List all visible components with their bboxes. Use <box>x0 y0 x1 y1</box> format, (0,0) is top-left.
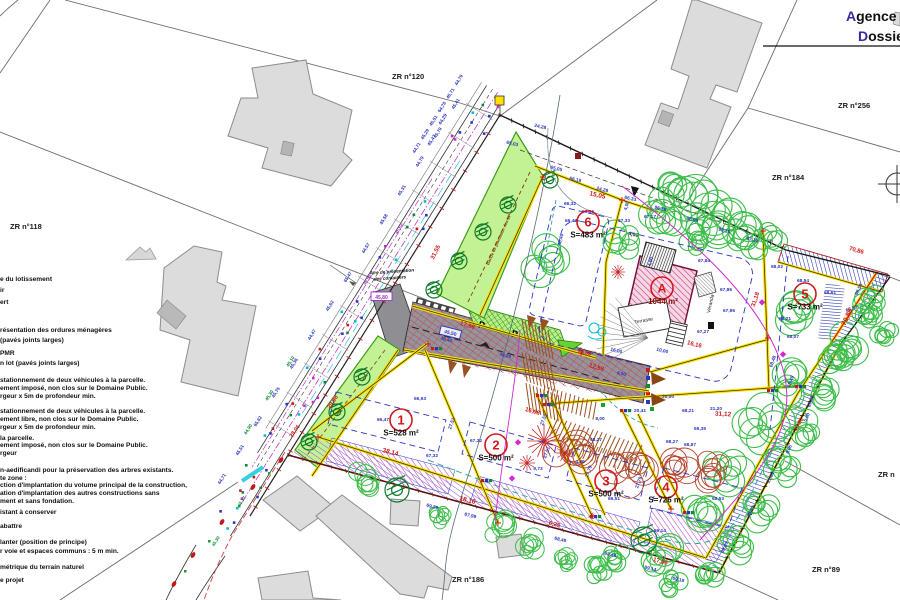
svg-text:S=528 m²: S=528 m² <box>383 429 419 438</box>
svg-text:ZR n°120: ZR n°120 <box>392 72 424 81</box>
svg-text:ement imposé, non clos sur le: ement imposé, non clos sur le Domaine Pu… <box>0 442 148 449</box>
svg-text:45,80: 45,80 <box>375 295 388 301</box>
svg-text:68,02: 68,02 <box>771 264 783 270</box>
svg-text:stationnement de deux véhicule: stationnement de deux véhicules à la par… <box>0 377 145 384</box>
svg-text:n-aedificandi pour la préserva: n-aedificandi pour la préservation des a… <box>0 467 173 474</box>
svg-text:PMR: PMR <box>0 350 15 357</box>
svg-text:ZR n°256: ZR n°256 <box>838 101 870 110</box>
svg-text:Agence :: Agence : <box>846 8 900 24</box>
svg-text:ir: ir <box>0 287 5 294</box>
svg-text:A: A <box>658 282 667 296</box>
svg-text:ement imposé, non clos sur le: ement imposé, non clos sur le Domaine Pu… <box>0 385 148 392</box>
svg-text:67,32: 67,32 <box>470 438 482 444</box>
svg-text:ation d'implantation des autre: ation d'implantation des autres construc… <box>0 490 160 497</box>
svg-text:66,93: 66,93 <box>414 396 426 402</box>
svg-text:68,07: 68,07 <box>787 334 799 340</box>
svg-text:8,00: 8,00 <box>595 416 605 422</box>
svg-text:abattre: abattre <box>0 523 22 530</box>
svg-text:4,00: 4,00 <box>575 459 585 465</box>
svg-text:31,12: 31,12 <box>715 411 732 419</box>
svg-text:1: 1 <box>397 413 404 428</box>
svg-text:66,32: 66,32 <box>564 201 576 207</box>
svg-text:ZR n°186: ZR n°186 <box>452 575 484 584</box>
svg-text:r voie et espaces communs : 5: r voie et espaces communs : 5 m min. <box>0 548 119 555</box>
svg-text:S=483 m²: S=483 m² <box>570 231 606 240</box>
svg-text:(pavés joints larges): (pavés joints larges) <box>0 337 64 344</box>
svg-text:ert: ert <box>0 299 9 306</box>
svg-text:66,42: 66,42 <box>565 218 577 224</box>
svg-text:S=726 m²: S=726 m² <box>648 496 684 505</box>
svg-text:68,27: 68,27 <box>590 437 602 443</box>
svg-text:ZR n°118: ZR n°118 <box>10 222 42 231</box>
svg-text:69,14: 69,14 <box>654 528 666 534</box>
svg-text:stationnement de deux véhicule: stationnement de deux véhicules à la par… <box>0 408 145 415</box>
svg-text:S=500 m²: S=500 m² <box>588 490 624 499</box>
svg-text:67,32: 67,32 <box>426 453 438 459</box>
svg-text:68,87: 68,87 <box>684 442 696 448</box>
svg-text:e projet: e projet <box>0 577 25 584</box>
svg-text:20,41: 20,41 <box>634 408 646 414</box>
svg-text:ction d'implantation du volume: ction d'implantation du volume principal… <box>0 482 187 489</box>
svg-text:67,33: 67,33 <box>618 218 630 224</box>
svg-text:Dossier: Dossier <box>858 28 900 44</box>
svg-text:ZR n°184: ZR n°184 <box>772 173 805 182</box>
svg-text:3: 3 <box>602 474 609 489</box>
svg-text:68,53: 68,53 <box>712 496 724 502</box>
svg-text:rgeur x 5m de profondeur min.: rgeur x 5m de profondeur min. <box>0 424 96 431</box>
svg-text:lanter (position de principe): lanter (position de principe) <box>0 539 87 546</box>
svg-text:la parcelle.: la parcelle. <box>0 435 34 442</box>
svg-text:67,86: 67,86 <box>720 287 732 293</box>
svg-text:n lot (pavés joints larges): n lot (pavés joints larges) <box>0 360 80 367</box>
svg-text:9,73: 9,73 <box>533 466 543 472</box>
svg-text:résentation des ordures ménagè: résentation des ordures ménagères <box>0 327 112 334</box>
svg-text:2: 2 <box>492 438 499 453</box>
svg-text:te zone :: te zone : <box>0 475 27 482</box>
svg-text:ZR n°89: ZR n°89 <box>812 565 840 574</box>
svg-text:68,61: 68,61 <box>824 290 836 296</box>
svg-text:ment et sans fondation.: ment et sans fondation. <box>0 498 74 505</box>
svg-text:S=500 m²: S=500 m² <box>478 454 514 463</box>
svg-text:68,27: 68,27 <box>666 439 678 445</box>
svg-text:5: 5 <box>801 287 808 302</box>
svg-text:68,21: 68,21 <box>779 316 791 322</box>
svg-text:e du lotissement: e du lotissement <box>0 276 53 283</box>
svg-text:67,27: 67,27 <box>697 329 709 335</box>
svg-text:rgeur x 5m de profondeur min.: rgeur x 5m de profondeur min. <box>0 393 96 400</box>
svg-text:67,84: 67,84 <box>698 258 710 264</box>
svg-text:67,96: 67,96 <box>723 308 735 314</box>
svg-text:4: 4 <box>662 480 670 495</box>
svg-text:20,00: 20,00 <box>662 394 674 400</box>
svg-text:istant à conserver: istant à conserver <box>0 509 57 516</box>
svg-text:métrique du terrain naturel: métrique du terrain naturel <box>0 564 84 571</box>
svg-text:S=733 m²: S=733 m² <box>787 303 823 312</box>
svg-text:1044 m²: 1044 m² <box>648 297 678 306</box>
svg-text:66,47: 66,47 <box>377 417 389 423</box>
svg-text:ZR n: ZR n <box>878 470 895 479</box>
svg-text:rgeur: rgeur <box>0 450 17 457</box>
svg-text:ement libre, non clos sur le D: ement libre, non clos sur le Domaine Pub… <box>0 416 139 423</box>
svg-text:68,21: 68,21 <box>682 408 694 414</box>
svg-text:69,35: 69,35 <box>694 426 706 432</box>
svg-text:67,17: 67,17 <box>644 214 656 220</box>
svg-text:6: 6 <box>584 215 591 230</box>
